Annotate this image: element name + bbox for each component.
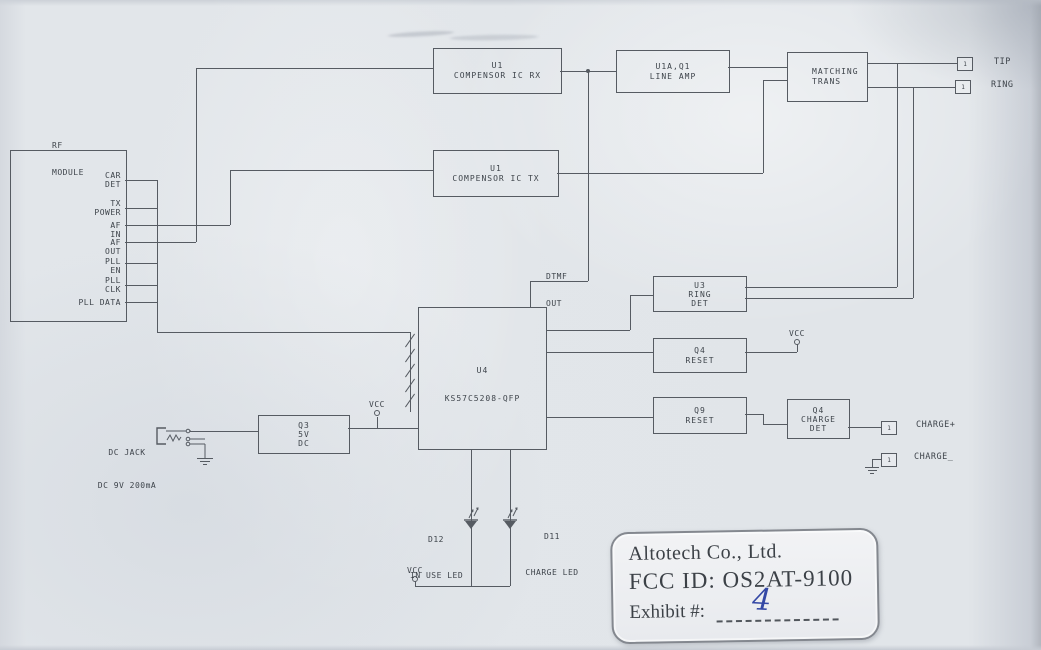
- wire-segment: [157, 180, 158, 332]
- block-label: DC: [298, 439, 310, 448]
- wire-segment: [125, 242, 196, 243]
- block-q9-reset: Q9 RESET: [653, 397, 747, 434]
- block-label: RESET: [685, 356, 714, 366]
- block-label: U1: [490, 164, 502, 174]
- dc-jack-icon: [153, 423, 223, 475]
- wire-segment: [763, 80, 787, 81]
- block-label: RESET: [685, 416, 714, 426]
- stamp-company: Altotech Co., Ltd.: [628, 539, 864, 566]
- block-label: DET: [691, 299, 708, 308]
- terminal-pin-number: 1: [961, 84, 965, 91]
- in-use-led-label: D12 IN USE LED: [410, 510, 462, 606]
- wire-segment: [797, 344, 798, 352]
- wire-segment: [913, 87, 914, 298]
- wire-segment: [125, 302, 157, 303]
- block-ring-det: U3 RING DET: [653, 276, 747, 312]
- led-ref: D11: [522, 531, 582, 543]
- fcc-exhibit-stamp: Altotech Co., Ltd. FCC ID: OS2AT-9100 Ex…: [610, 528, 880, 645]
- block-label: CHARGE: [801, 415, 836, 424]
- pin-af-out: AFOUT: [105, 238, 121, 256]
- block-compensor-rx: U1 COMPENSOR IC RX: [433, 48, 562, 94]
- wire-segment: [348, 428, 418, 429]
- wire-segment: [157, 332, 410, 333]
- wire-segment: [763, 80, 764, 173]
- led-ref: D12: [410, 534, 462, 546]
- block-compensor-tx: U1 COMPENSOR IC TX: [433, 150, 559, 197]
- wire-segment: [745, 352, 797, 353]
- stamp-fcc-id: FCC ID: OS2AT-9100: [629, 565, 865, 595]
- block-charge-det: Q4 CHARGE DET: [787, 399, 850, 439]
- dtmf-label-line: DTMF: [546, 272, 567, 281]
- block-label: Q3: [298, 421, 310, 430]
- wire-segment: [125, 285, 157, 286]
- wire-segment: [588, 71, 589, 281]
- wire-segment: [547, 417, 653, 418]
- block-label: DET: [810, 424, 827, 433]
- wire-segment: [530, 281, 531, 307]
- dc-jack-label-line: DC 9V 200mA: [95, 480, 159, 491]
- dtmf-label-line: OUT: [546, 299, 567, 308]
- block-line-amp: U1A,Q1 LINE AMP: [616, 50, 730, 93]
- pin-af-in: AFIN: [110, 221, 121, 239]
- stamp-exhibit-line: 4: [717, 598, 839, 622]
- block-label: COMPENSOR IC RX: [454, 71, 541, 81]
- vcc-circle: [374, 410, 380, 416]
- wire-segment: [377, 417, 378, 428]
- wire-segment: [763, 424, 787, 425]
- led-diode-icon: [461, 504, 481, 534]
- block-label: TRANS: [812, 77, 841, 87]
- block-regulator-q3: Q3 5V DC: [258, 415, 350, 454]
- wire-segment: [868, 63, 957, 64]
- block-label: LINE AMP: [650, 72, 697, 82]
- led-name: CHARGE LED: [522, 567, 582, 579]
- block-matching-trans: MATCHING TRANS: [787, 52, 868, 102]
- dtmf-out-label: DTMF OUT: [546, 254, 567, 326]
- scanned-block-diagram: RF MODULE CARDET TXPOWER AFIN AFOUT PLLE…: [0, 0, 1041, 650]
- wire-segment: [547, 330, 630, 331]
- led-name: IN USE LED: [410, 570, 462, 582]
- terminal-pin-number: 1: [887, 457, 891, 464]
- block-label: U4: [477, 366, 489, 376]
- wire-segment: [630, 295, 653, 296]
- charge-plus-label: CHARGE+: [916, 421, 955, 430]
- wire-segment: [557, 173, 763, 174]
- wire-segment: [125, 263, 157, 264]
- wire-segment: [897, 63, 898, 287]
- block-label: U3: [694, 281, 706, 290]
- block-label: Q9: [694, 406, 706, 416]
- wire-segment: [868, 87, 955, 88]
- pin-pll-data: PLL DATA: [78, 298, 121, 307]
- block-q4-reset: Q4 RESET: [653, 338, 747, 373]
- rf-module-pins: CARDET TXPOWER AFIN AFOUT PLLEN PLLCLK P…: [60, 150, 121, 320]
- charge-minus-label: CHARGE_: [914, 453, 953, 462]
- block-mcu-u4: U4 KS57C5208-QFP: [418, 307, 547, 450]
- tip-label: TIP: [994, 58, 1011, 67]
- stamp-exhibit-handwritten-value: 4: [752, 585, 773, 616]
- wire-segment: [848, 427, 881, 428]
- dc-jack-label: DC JACK DC 9V 200mA: [95, 425, 159, 513]
- scan-smudge: [388, 30, 454, 38]
- wire-segment: [745, 287, 897, 288]
- block-label: RING: [688, 290, 711, 299]
- wire-segment: [196, 68, 433, 69]
- wire-segment: [125, 180, 157, 181]
- wire-segment: [230, 170, 433, 171]
- wire-segment: [196, 68, 197, 242]
- block-label: MATCHING: [812, 67, 859, 77]
- pin-tx-power: TXPOWER: [94, 199, 121, 217]
- wire-segment: [230, 170, 231, 225]
- terminal-tip: 1: [957, 57, 973, 71]
- block-label: U1: [492, 61, 504, 71]
- charge-led-label: D11 CHARGE LED: [522, 507, 582, 603]
- wire-segment: [630, 295, 631, 330]
- terminal-charge-plus: 1: [881, 421, 897, 435]
- pin-pll-clk: PLLCLK: [105, 276, 121, 294]
- terminal-pin-number: 1: [963, 61, 967, 68]
- block-label: Q4: [694, 346, 706, 356]
- wire-segment: [745, 414, 763, 415]
- block-label: 5V: [298, 430, 310, 439]
- terminal-ring: 1: [955, 80, 971, 94]
- wire-segment: [763, 414, 764, 424]
- wire-segment: [125, 208, 157, 209]
- stamp-exhibit-label: Exhibit #:: [629, 601, 705, 624]
- pin-car-det: CARDET: [105, 171, 121, 189]
- block-label: KS57C5208-QFP: [445, 394, 521, 404]
- terminal-charge-minus: 1: [881, 453, 897, 467]
- terminal-pin-number: 1: [887, 425, 891, 432]
- vcc-label: VCC: [783, 329, 811, 338]
- scan-smudge: [450, 34, 538, 41]
- led-diode-icon: [500, 504, 520, 534]
- block-label: U1A,Q1: [656, 62, 691, 72]
- pin-pll-en: PLLEN: [105, 257, 121, 275]
- wire-segment: [547, 352, 653, 353]
- wire-segment: [125, 225, 230, 226]
- block-label: COMPENSOR IC TX: [452, 174, 539, 184]
- ring-label: RING: [991, 81, 1013, 90]
- wire-segment: [745, 298, 913, 299]
- vcc-circle: [794, 339, 800, 345]
- wire-segment: [872, 459, 881, 460]
- block-label: Q4: [813, 406, 825, 415]
- rf-module-title-line: RF: [52, 141, 84, 150]
- wire-segment: [872, 459, 873, 467]
- dc-jack-label-line: DC JACK: [95, 447, 159, 458]
- wire-segment: [728, 67, 787, 68]
- vcc-label: VCC: [363, 400, 391, 409]
